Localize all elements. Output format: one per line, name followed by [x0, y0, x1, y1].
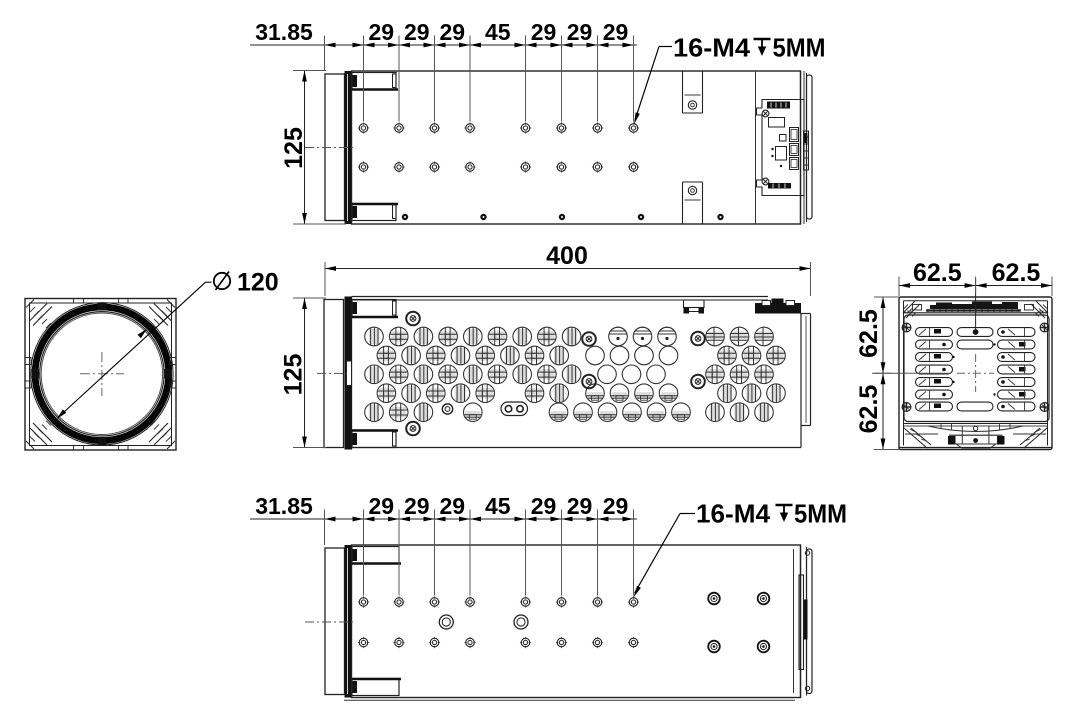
svg-text:29: 29 — [603, 19, 629, 45]
svg-text:29: 29 — [440, 493, 466, 519]
svg-text:29: 29 — [531, 19, 557, 45]
svg-text:29: 29 — [404, 493, 430, 519]
svg-text:29: 29 — [404, 19, 430, 45]
svg-text:31.85: 31.85 — [255, 493, 313, 519]
svg-text:29: 29 — [567, 493, 593, 519]
svg-text:29: 29 — [603, 493, 629, 519]
svg-text:62.5: 62.5 — [855, 309, 883, 358]
svg-text:5MM: 5MM — [794, 499, 847, 529]
svg-text:62.5: 62.5 — [992, 259, 1041, 287]
svg-text:29: 29 — [440, 19, 466, 45]
svg-text:45: 45 — [485, 19, 511, 45]
svg-text:45: 45 — [485, 493, 511, 519]
svg-text:5MM: 5MM — [773, 33, 826, 63]
svg-text:29: 29 — [369, 493, 395, 519]
svg-text:29: 29 — [369, 19, 395, 45]
svg-text:62.5: 62.5 — [913, 259, 962, 287]
svg-text:400: 400 — [546, 242, 588, 270]
svg-text:125: 125 — [280, 354, 308, 396]
svg-text:125: 125 — [280, 127, 308, 169]
svg-text:120: 120 — [237, 269, 279, 297]
svg-text:62.5: 62.5 — [855, 385, 883, 434]
svg-text:31.85: 31.85 — [255, 19, 313, 45]
svg-text:29: 29 — [531, 493, 557, 519]
svg-text:16-M4: 16-M4 — [673, 33, 751, 63]
svg-text:29: 29 — [567, 19, 593, 45]
svg-text:16-M4: 16-M4 — [696, 499, 771, 529]
